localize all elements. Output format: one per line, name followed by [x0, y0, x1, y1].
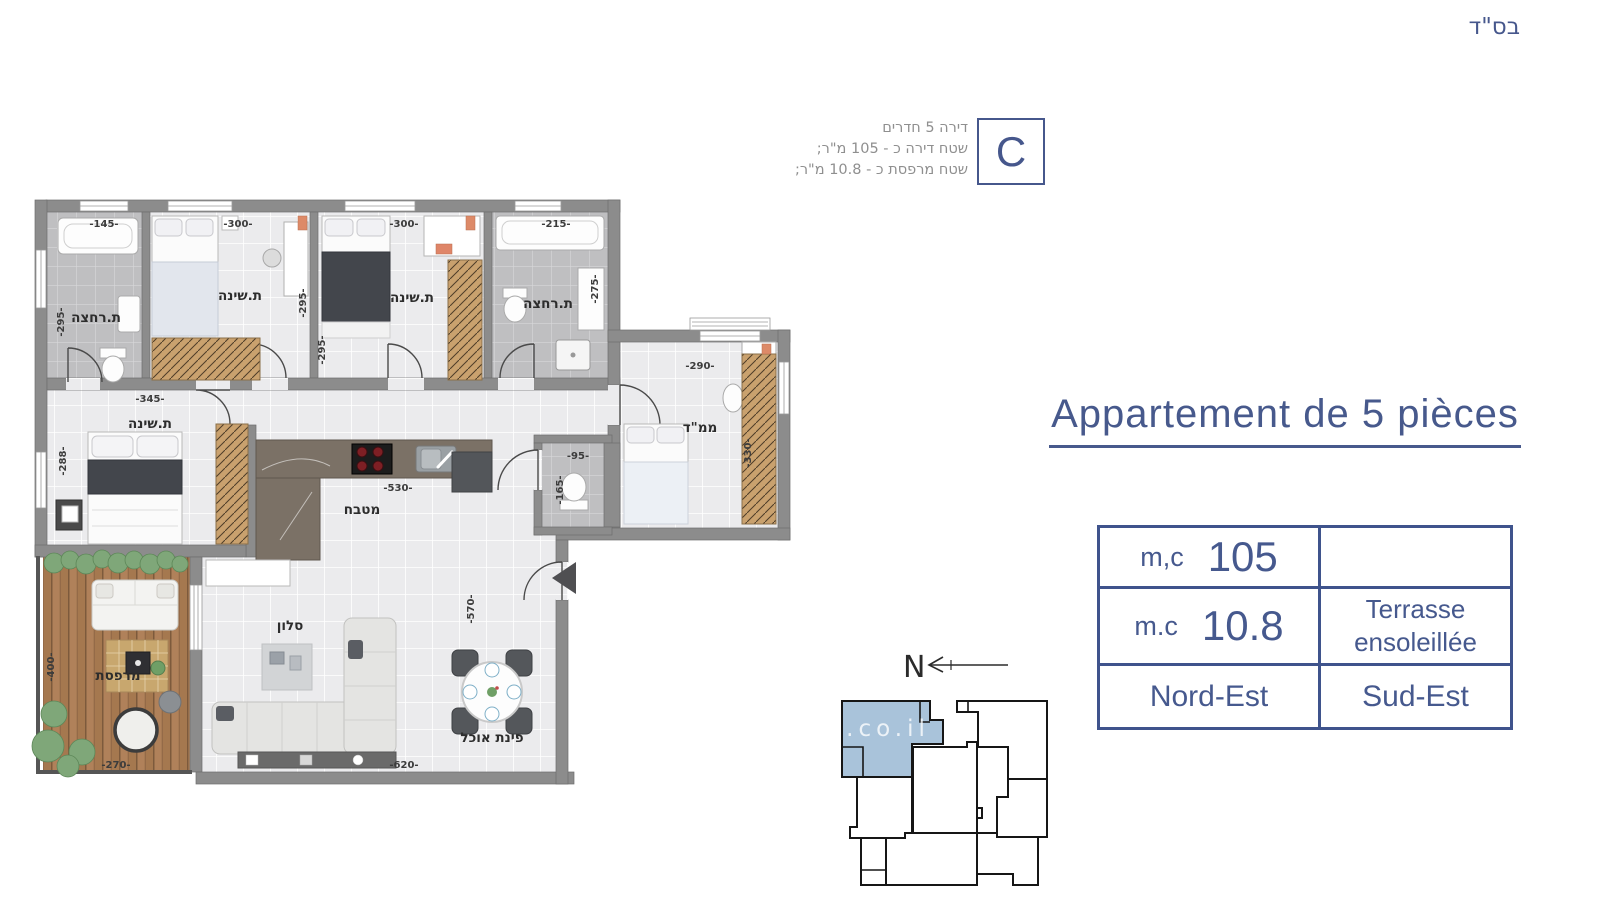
keyplan-unit — [850, 777, 912, 838]
terrace-unit-label: m.c — [1134, 611, 1178, 642]
spec-cell-orientation-2: Sud-Est — [1321, 666, 1510, 727]
room-label-living: סלון — [277, 618, 304, 634]
room-label-kitchen: מטבח — [344, 502, 380, 518]
terrace-desc-line1: Terrasse — [1366, 593, 1466, 626]
unit-info-block: דירה 5 חדרים שטח דירה כ - 105 מ"ר; שטח מ… — [795, 118, 968, 181]
room-label-mamad: ממ"ד — [683, 420, 718, 436]
dim-bed2-w: -300- — [223, 219, 252, 230]
dim-wc-h: -165- — [555, 475, 566, 504]
dim-mamad-h: -330- — [743, 438, 754, 467]
dim-bed3-w: -300- — [389, 219, 418, 230]
dim-bath1-h: -295- — [56, 307, 67, 336]
apartment-floorplan: ת.רחצה ת.שינה ת.שינה ת.רחצה ממ"ד ת.שינה … — [32, 200, 790, 784]
spec-cell-empty — [1321, 528, 1510, 586]
dim-bath2-w: -215- — [541, 219, 570, 230]
spec-cell-area: m,c 105 — [1100, 528, 1318, 586]
keyplan-unit — [886, 833, 977, 885]
room-label-bath1: ת.רחצה — [71, 310, 121, 326]
spec-cell-orientation-1: Nord-Est — [1100, 666, 1318, 727]
keyplan-unit — [913, 742, 977, 833]
keyplan-unit — [861, 838, 886, 885]
terrace-value: 10.8 — [1202, 602, 1284, 650]
dim-bath2-h: -275- — [590, 274, 601, 303]
room-label-terrace: מרפסת — [95, 668, 140, 684]
unit-letter: C — [996, 128, 1026, 176]
unit-info-line-3: שטח מרפסת כ - 10.8 מ"ר; — [795, 160, 968, 181]
north-arrow: N — [903, 650, 1008, 685]
room-label-bath2: ת.רחצה — [523, 296, 573, 312]
terrace-desc-line2: ensoleillée — [1354, 626, 1477, 659]
page-title: Appartement de 5 pièces — [1025, 392, 1545, 448]
room-label-bedroom3: ת.שינה — [390, 290, 434, 306]
dim-bath1-w: -145- — [89, 219, 118, 230]
dim-mamad-w: -290- — [685, 361, 714, 372]
unit-letter-box: C — [977, 118, 1045, 185]
unit-info-line-2: שטח דירה כ - 105 מ"ר; — [795, 139, 968, 160]
terrace-slider-door — [190, 585, 202, 650]
dim-kitchen-w: -530- — [383, 483, 412, 494]
building-keyplan: .co.il — [842, 701, 1047, 885]
spec-table: m,c 105 m.c 10.8 Terrasse ensoleillée No… — [1097, 525, 1513, 730]
shutter-ledge — [690, 318, 770, 330]
dim-wc-w: -95- — [567, 451, 589, 462]
unit-info-line-1: דירה 5 חדרים — [795, 118, 968, 139]
north-label: N — [903, 650, 925, 685]
dim-bed3-h: -295- — [317, 335, 328, 364]
room-label-master: ת.שינה — [128, 416, 172, 432]
page-title-text: Appartement de 5 pièces — [1049, 392, 1521, 448]
dim-bed2-h: -295- — [298, 288, 309, 317]
spec-cell-terrace-area: m.c 10.8 — [1100, 589, 1318, 663]
dim-living-w: -620- — [389, 760, 418, 771]
room-label-dining: פינת אוכל — [460, 730, 523, 746]
area-value: 105 — [1208, 533, 1278, 581]
dim-terrace-w: -270- — [101, 760, 130, 771]
keyplan-unit — [997, 779, 1047, 837]
keyplan-unit — [977, 833, 1038, 885]
dim-terrace-h: -400- — [46, 652, 57, 681]
watermark-text: .co.il — [846, 716, 930, 742]
spec-cell-terrace-desc: Terrasse ensoleillée — [1321, 589, 1510, 663]
dim-master-h: -288- — [58, 446, 69, 475]
dim-living-h: -570- — [466, 594, 477, 623]
room-label-bedroom2: ת.שינה — [218, 288, 262, 304]
bsd-text: בס"ד — [1469, 14, 1520, 40]
dining-set — [452, 650, 532, 734]
dim-master-w: -345- — [135, 394, 164, 405]
area-unit-label: m,c — [1140, 542, 1184, 573]
